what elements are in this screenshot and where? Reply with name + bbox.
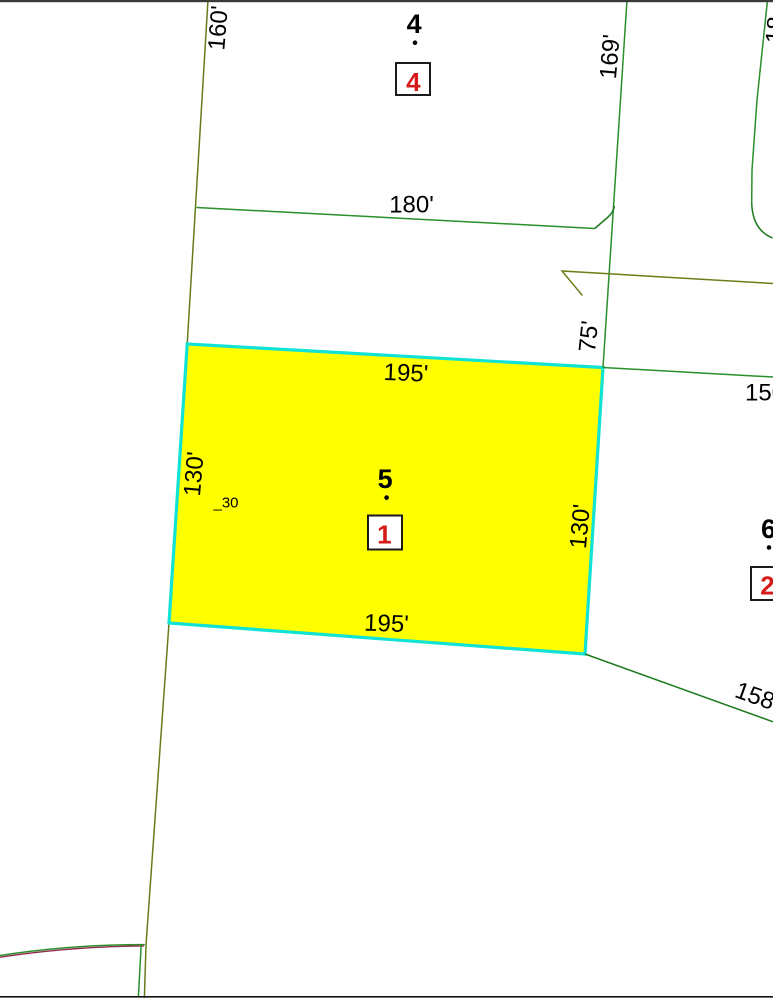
svg-text:1: 1 [377,520,391,550]
svg-text:18: 18 [761,16,773,45]
svg-text:2: 2 [760,571,773,601]
svg-text:180': 180' [389,192,434,219]
svg-text:5: 5 [378,464,393,494]
svg-text:4: 4 [407,9,422,39]
svg-text:6: 6 [761,514,773,544]
svg-text:195': 195' [383,359,429,388]
svg-text:160': 160' [203,5,233,52]
svg-text:169': 169' [595,33,626,80]
svg-text:75': 75' [574,320,604,354]
svg-text:195': 195' [364,610,410,639]
svg-text:150': 150' [745,380,773,407]
svg-text:130': 130' [565,503,596,550]
svg-text:130': 130' [179,451,210,498]
svg-text:4: 4 [406,67,421,97]
svg-text:_30: _30 [213,495,239,512]
